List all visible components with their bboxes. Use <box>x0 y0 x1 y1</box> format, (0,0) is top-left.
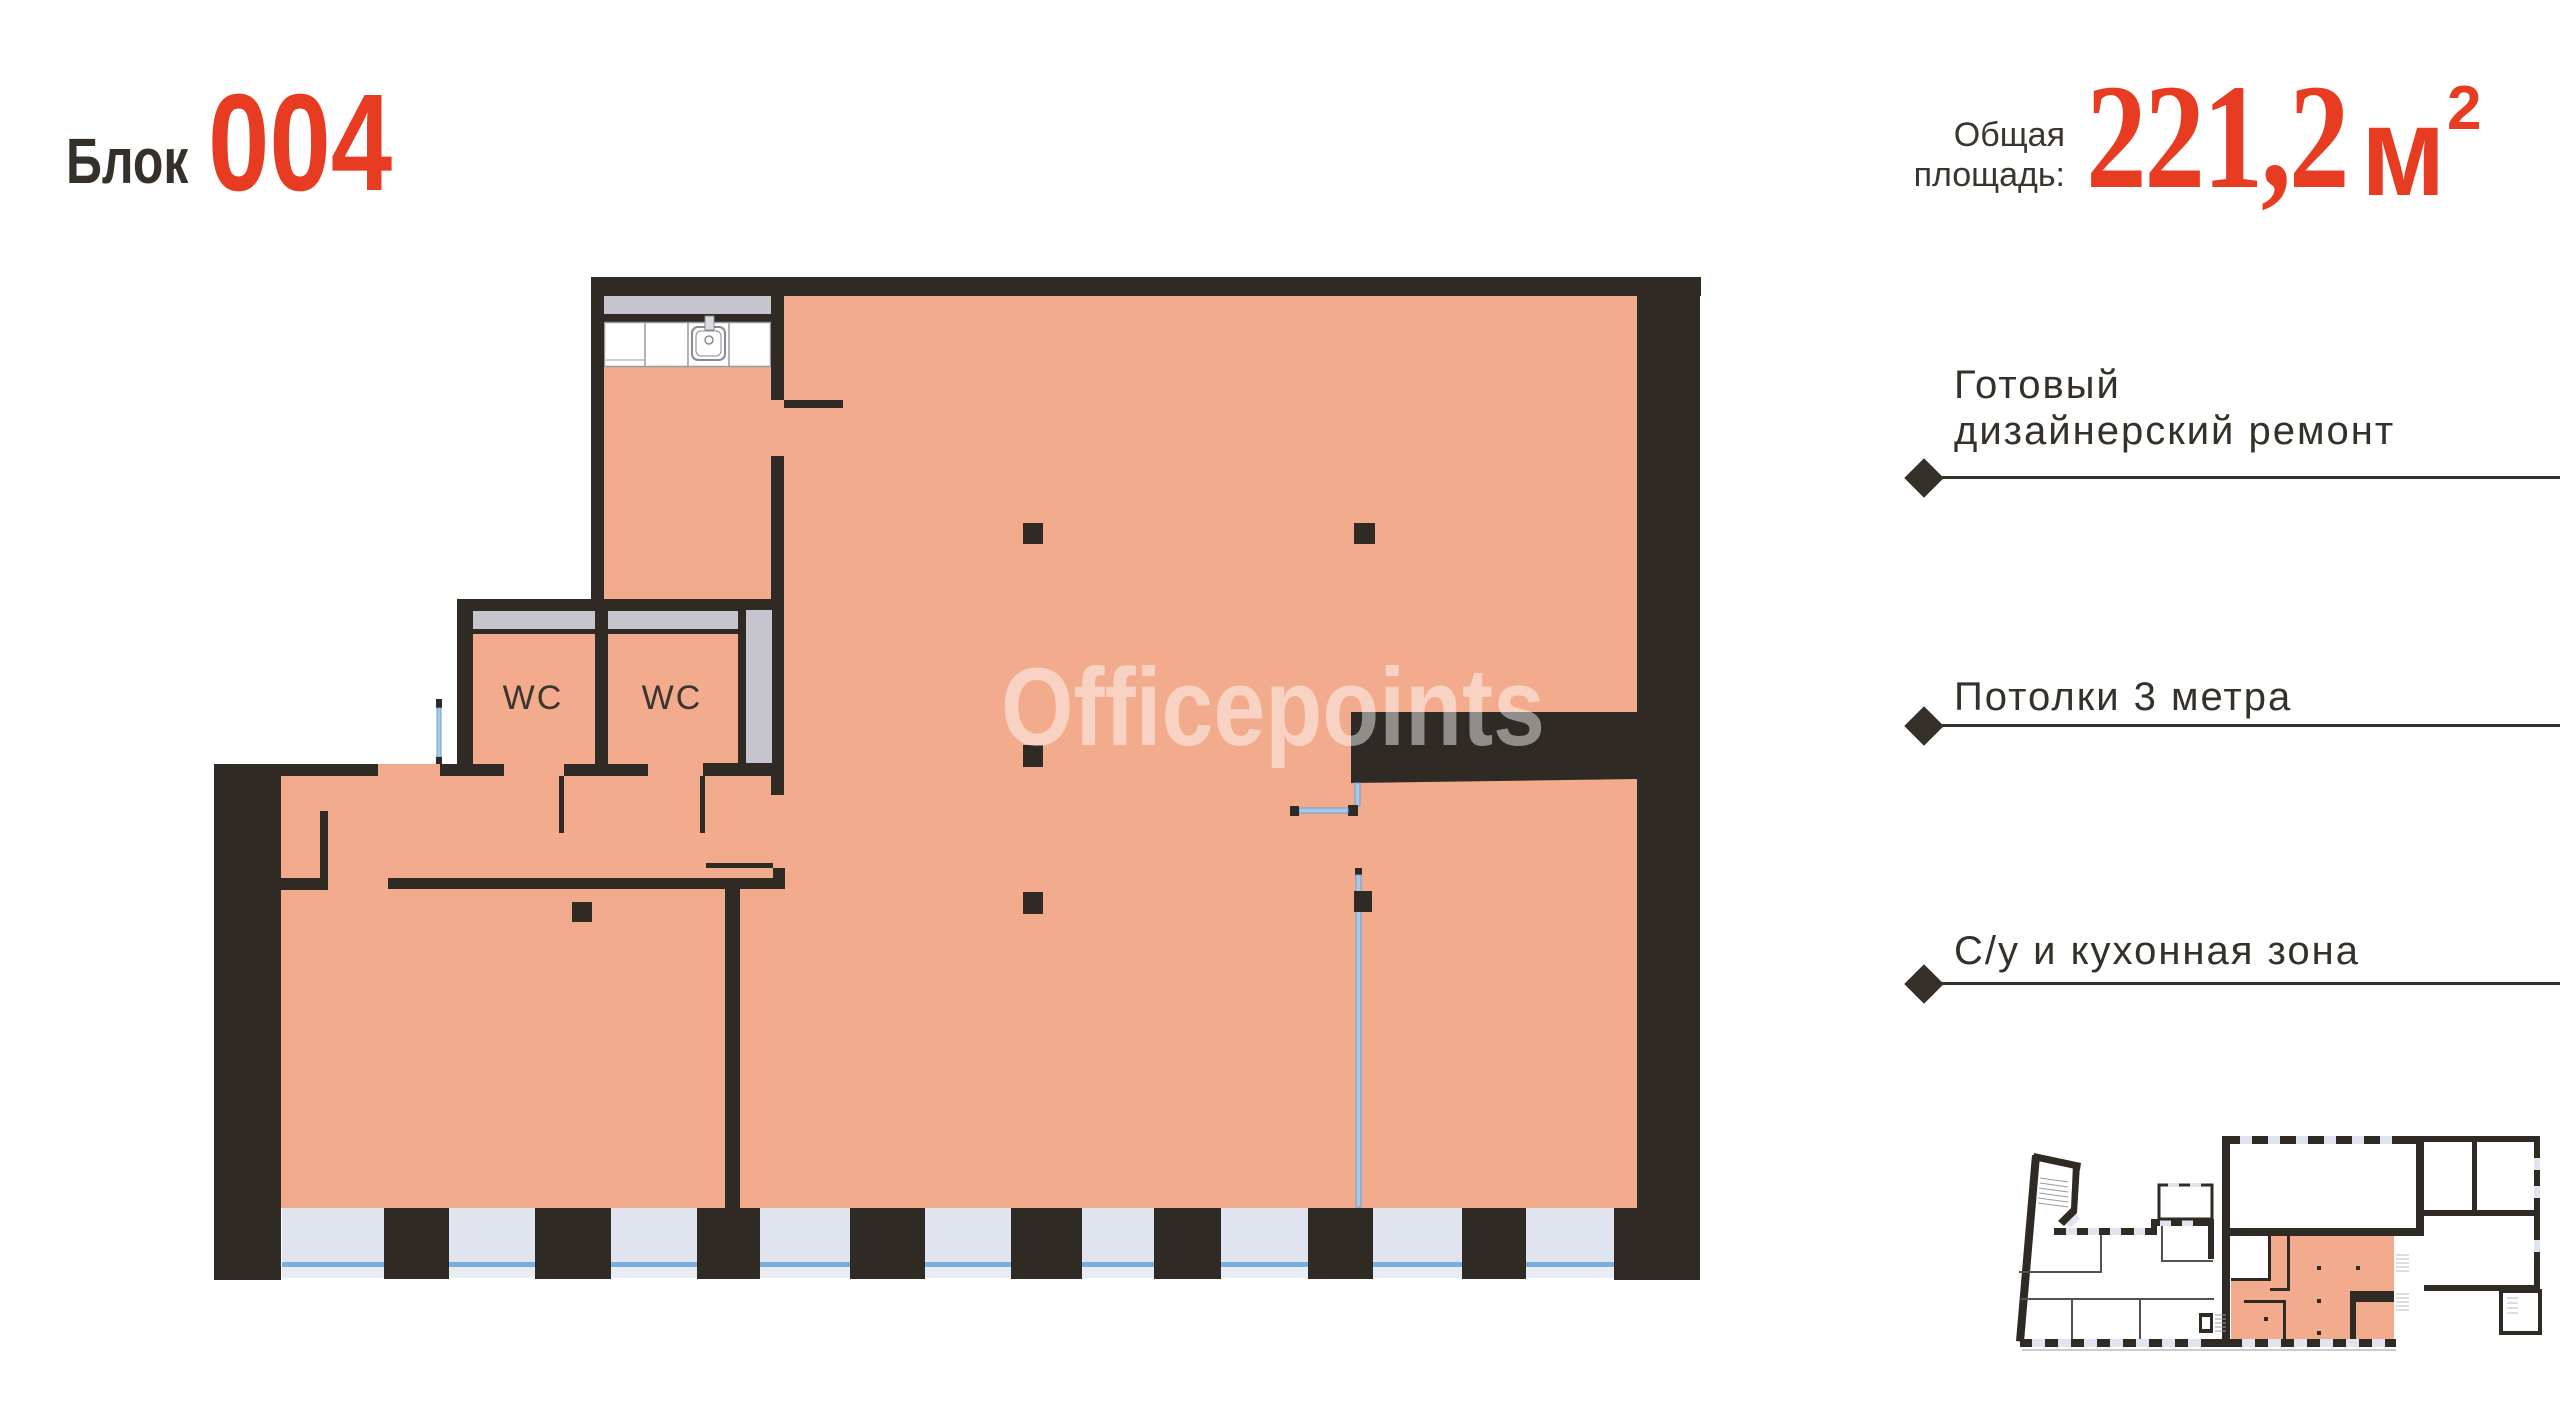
svg-text:WC: WC <box>642 679 703 717</box>
svg-text:Officepoints: Officepoints <box>1001 646 1545 769</box>
svg-text:WC: WC <box>503 679 564 717</box>
